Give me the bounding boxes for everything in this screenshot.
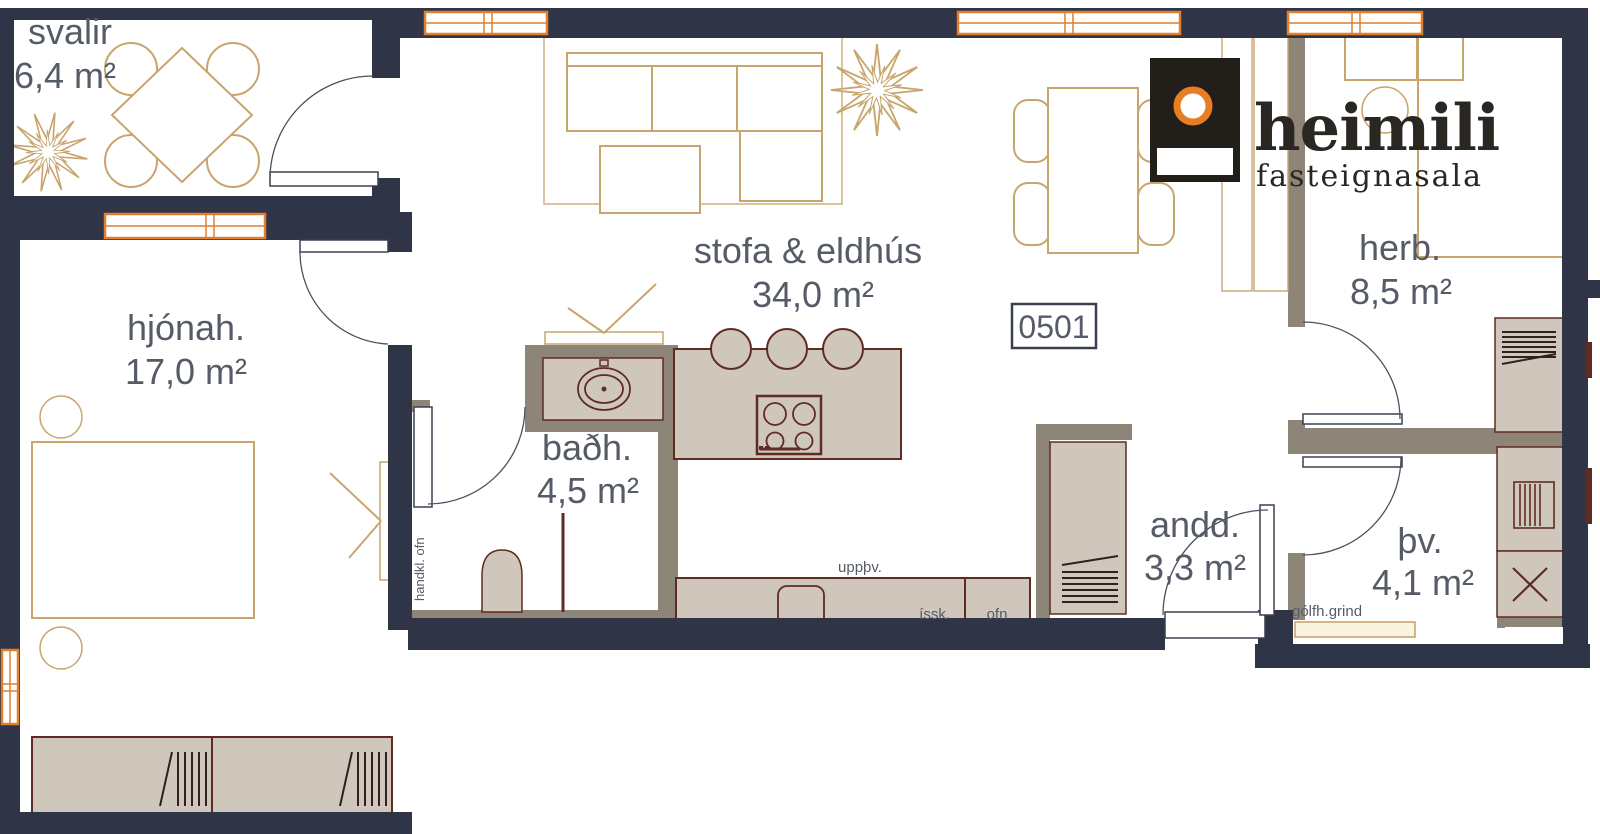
dining-table [1048,88,1138,253]
laundry-door [1303,457,1402,555]
hjonah-label: hjónah. [127,307,245,348]
radiator-icon [545,332,663,344]
floorplan-canvas: heimili fasteignasala 0501 svalir 6,4 m²… [0,0,1600,834]
wall-vent [1505,627,1563,644]
plant-icon [831,44,923,136]
sofa-chaise [740,131,822,201]
logo-tagline-text: fasteignasala [1256,159,1483,194]
nightstand [40,396,82,438]
bedroom-door [300,240,388,344]
dining-chair [1138,183,1174,245]
stofa-area: 34,0 m² [752,274,874,315]
badh-area: 4,5 m² [537,470,639,511]
logo-ring-icon [1177,90,1209,122]
nightstand [1345,35,1417,80]
window [958,12,1180,34]
badh-label: baðh. [542,427,632,468]
fridge-label: íssk. [919,606,950,623]
svalir-label: svalir [28,11,112,52]
herb-door [1303,322,1402,424]
herb-label: herb. [1359,227,1441,268]
floor-heating-manifold [1295,622,1415,637]
floor-heating-label: gólfh.grind [1292,603,1362,620]
thv-label: þv. [1397,520,1442,561]
double-bed [32,442,254,618]
bathroom-door [414,407,525,507]
floorplan-svg: heimili fasteignasala 0501 svalir 6,4 m²… [0,0,1600,834]
dishwasher-label: uppþv. [838,559,882,576]
svalir-area: 6,4 m² [14,55,116,96]
laundry-appliances [1497,447,1563,617]
window [425,12,547,34]
pillow [1418,36,1463,80]
thv-area: 4,1 m² [1372,562,1474,603]
oven-label: ofn [987,606,1008,623]
kitchen-island [674,329,901,459]
balcony-door [270,76,378,186]
towel-radiator-label: handkl. ofn [412,537,427,601]
entrance-threshold [1165,612,1265,638]
bar-stool [767,329,807,369]
window [2,650,18,724]
andd-label: andd. [1150,504,1240,545]
nightstand [40,627,82,669]
herb-wardrobe [1495,318,1563,432]
bar-stool [711,329,751,369]
dining-chair [1014,183,1050,245]
window [105,214,265,238]
toilet-icon [482,550,522,612]
window [1288,12,1422,34]
stofa-label: stofa & eldhús [694,230,922,271]
unit-number: 0501 [1018,309,1089,345]
bar-stool [823,329,863,369]
hall-cabinet [1050,442,1126,614]
hjonah-area: 17,0 m² [125,351,247,392]
coffee-table [600,146,700,213]
andd-area: 3,3 m² [1144,547,1246,588]
hjonah-furniture [32,396,393,669]
logo-brand-text: heimili [1254,91,1499,166]
bedroom-wardrobe [32,737,392,813]
dining-chair [1014,100,1050,162]
herb-area: 8,5 m² [1350,271,1452,312]
plant-icon [2,106,95,199]
unit-number-box: 0501 [1012,304,1096,348]
